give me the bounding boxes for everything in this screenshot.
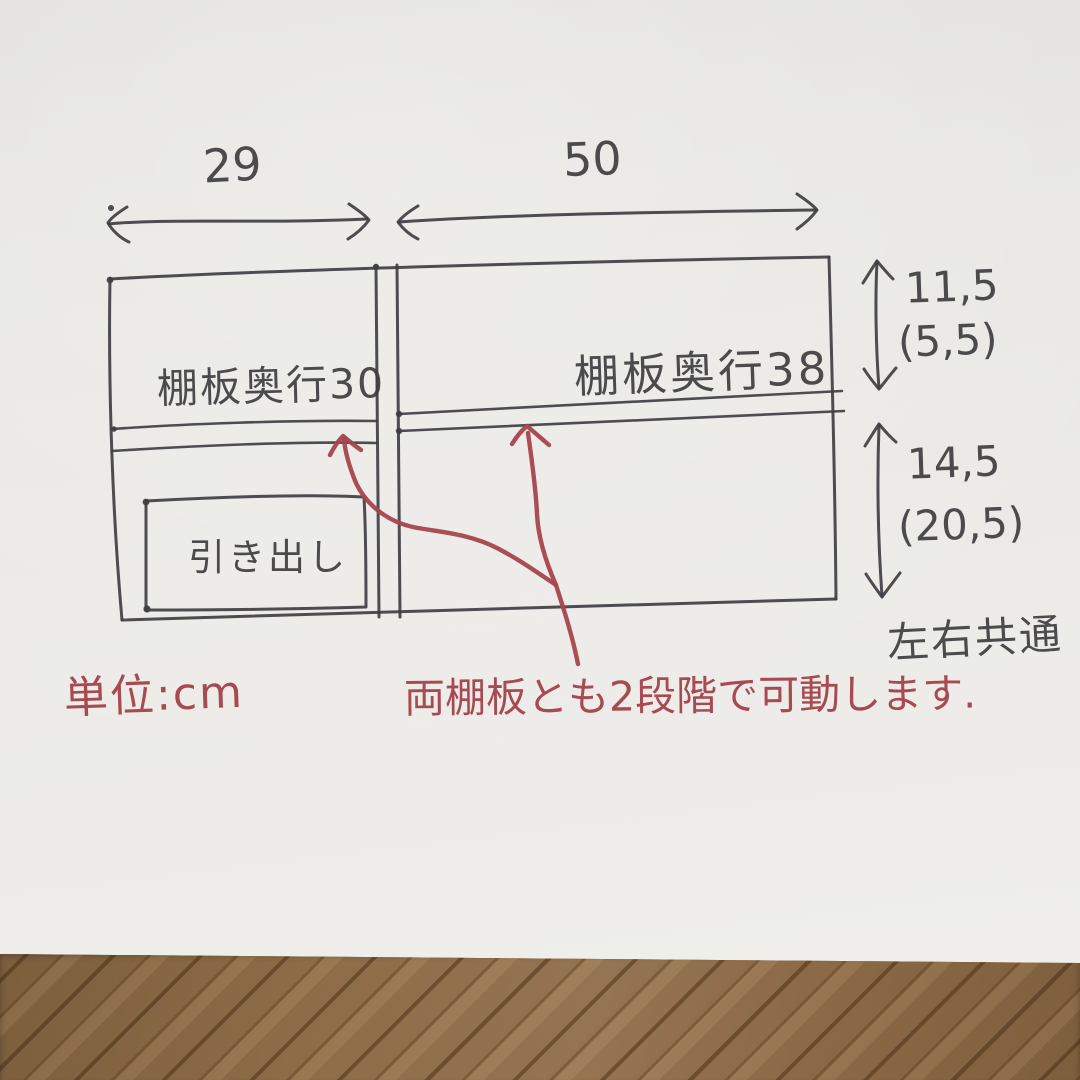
height-dimension-arrow-upper	[863, 261, 896, 389]
upper-height-value: 11,5	[904, 264, 999, 309]
height-dimension-arrow-lower	[865, 424, 900, 597]
lower-height-value: 14,5	[906, 440, 1001, 485]
photo-of-hand-drawn-shelf-sketch: 29 50 棚板奥行30 棚板奥行38 引き出し 11,5 (5,5) 14,5…	[0, 0, 1080, 1080]
upper-height-alt-value: (5,5)	[897, 318, 998, 363]
width-dimension-arrow-29	[108, 204, 369, 242]
width-label-50: 50	[562, 135, 622, 183]
both-sides-common-label: 左右共通	[886, 613, 1064, 664]
drawer-label: 引き出し	[188, 539, 348, 576]
red-annotation-arrows	[330, 426, 578, 664]
unit-note: 単位:cm	[63, 671, 244, 721]
width-dimension-arrow-50	[398, 194, 817, 239]
lower-height-alt-value: (20,5)	[897, 502, 1025, 548]
wood-floor	[0, 950, 1080, 1080]
left-shelf-depth-label: 棚板奥行30	[157, 363, 386, 410]
movable-shelves-note: 両棚板とも2段階で可動します.	[404, 674, 976, 720]
right-shelf-depth-label: 棚板奥行38	[573, 346, 830, 400]
width-label-29: 29	[202, 140, 263, 189]
